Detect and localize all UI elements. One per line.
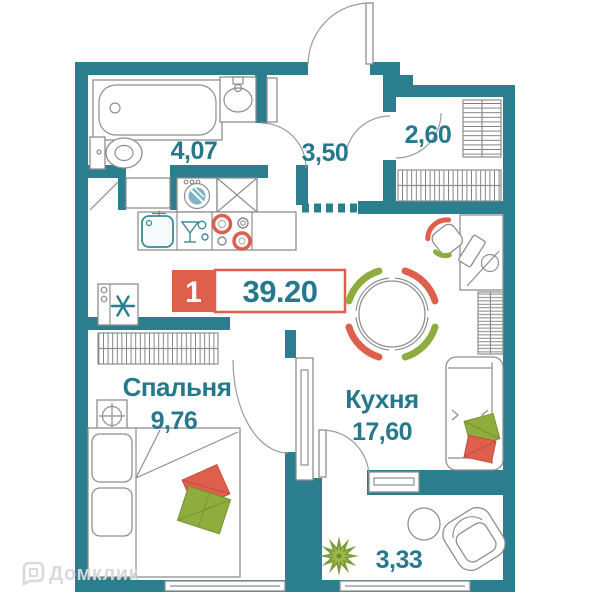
kitchen-area-label: 17,60 [352,418,412,446]
balcony-area-label: 3,33 [376,546,423,574]
kitchen: Кухня 17,60 [319,215,503,492]
storage-area-label: 2,60 [405,121,452,149]
desk-chair-icon [422,216,466,261]
fridge-icon [98,284,138,325]
desk-icon [458,215,503,290]
radiator-icon [478,292,503,354]
bathroom-area-label: 4,07 [171,137,218,165]
entrance-door [308,3,373,65]
washing-machine-icon [177,178,217,212]
watermark-brand-label: Домклик [49,563,139,585]
window [340,581,470,591]
armchair-icon [438,502,511,575]
shower-box-icon [217,178,257,212]
total-area-badge: 1 39.20 [172,270,345,312]
watermark-logo-icon [24,563,43,584]
balcony: 3,33 [319,502,510,591]
sliding-panel [296,358,313,480]
window [165,581,285,591]
floor-plan: 4,07 [0,0,600,600]
toilet-icon [90,137,142,169]
bedroom-area-label: 9,76 [151,407,198,435]
wardrobe-icon [463,100,501,157]
coffee-table-icon [408,508,440,540]
kitchen-name-label: Кухня [345,384,418,414]
sink-icon [220,77,256,122]
storage-room: 2,60 [396,100,501,201]
sofa-icon [446,357,503,470]
bed-icon [88,428,240,577]
watermark: Домклик [24,563,139,585]
bedroom-name-label: Спальня [123,372,232,402]
total-area-label: 39.20 [242,274,317,309]
hallway-area-label: 3,50 [302,139,349,167]
bedroom-door [233,360,288,453]
plant-icon [319,536,359,576]
hallway: 3,50 [302,116,390,167]
rooms-count-label: 1 [185,276,202,309]
wardrobe-icon [98,333,218,364]
wardrobe-icon [398,170,501,201]
floor-plan-page: 4,07 [0,0,600,600]
kitchen-sink-icon [142,211,173,248]
ceiling-light-icon [97,400,127,432]
bathtub-icon [93,80,222,140]
kitchen-counter [138,211,296,251]
bedroom: Спальня 9,76 [88,333,313,591]
dining-table-icon [349,271,435,357]
